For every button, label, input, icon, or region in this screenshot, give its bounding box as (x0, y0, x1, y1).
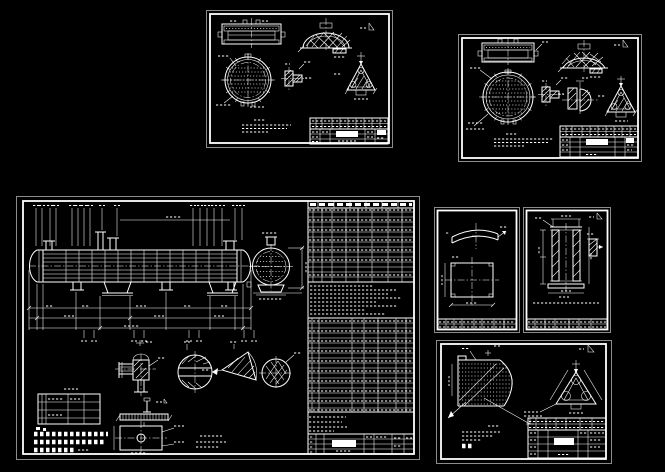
title-block (528, 418, 606, 458)
sub-notes-block (309, 417, 347, 431)
sector-tube-field-view (448, 346, 534, 424)
parts-list-table (308, 318, 414, 412)
detail-view-nozzle (115, 340, 166, 396)
baffle-layout-table (36, 389, 100, 431)
notes-block (494, 134, 554, 146)
sheet-border (524, 208, 611, 333)
chinese-notes-block (34, 434, 108, 450)
title-block (560, 126, 638, 157)
vessel-dimension-lines (27, 270, 257, 341)
detail-view-head-fragment (178, 342, 212, 393)
sheet-cylinder-section-part[interactable] (523, 207, 611, 333)
notes-block (242, 120, 291, 132)
sheet-tube-layout-sector[interactable] (436, 340, 612, 464)
detail-view-cone (202, 342, 257, 380)
title-strip (438, 319, 516, 329)
cylinder-section-view (535, 216, 591, 293)
gasket-detail-view (538, 78, 568, 107)
title-strip (527, 319, 607, 329)
cad-canvas: { "canvas": { "background_color": "#0000… (0, 0, 665, 472)
tube-pitch-triangle-view (524, 360, 602, 416)
sheet-heat-exchanger-assembly[interactable] (16, 196, 420, 460)
head-section-view (298, 18, 352, 57)
gasket-detail-view (281, 62, 312, 91)
sheet-curved-plate-part[interactable] (434, 207, 520, 333)
tube-layout-triangle-view (598, 76, 637, 121)
flange-section-view (478, 37, 548, 65)
tube-layout-triangle-view (334, 52, 377, 99)
title-block (310, 118, 388, 144)
detail-view-plug (259, 353, 302, 390)
view-direction-mark (614, 40, 628, 47)
note-line (533, 297, 599, 303)
view-direction-mark (360, 23, 374, 30)
sheet-tube-sheet-drawing-a[interactable] (206, 10, 393, 148)
head-section-view (558, 40, 608, 77)
nozzle-detail-view (558, 78, 598, 116)
technical-notes-block (310, 286, 402, 314)
vessel-longitudinal-view (29, 206, 259, 296)
small-detail-view (587, 234, 603, 256)
tube-sheet-face-view (466, 68, 537, 129)
view-direction-mark (589, 213, 602, 219)
detail-note-block (196, 436, 226, 447)
sheet-border (435, 208, 520, 333)
flange-section-view (218, 18, 285, 48)
plate-plan-view (442, 257, 499, 307)
title-block (308, 434, 414, 454)
view-direction-mark (579, 345, 594, 352)
notes-block (462, 426, 500, 446)
sheet-tube-sheet-drawing-b[interactable] (458, 34, 642, 162)
tube-sheet-face-view (216, 53, 275, 107)
curved-plate-top-view (446, 223, 508, 249)
nozzle-schedule-table (308, 201, 414, 282)
wear-plate-detail (114, 398, 184, 454)
